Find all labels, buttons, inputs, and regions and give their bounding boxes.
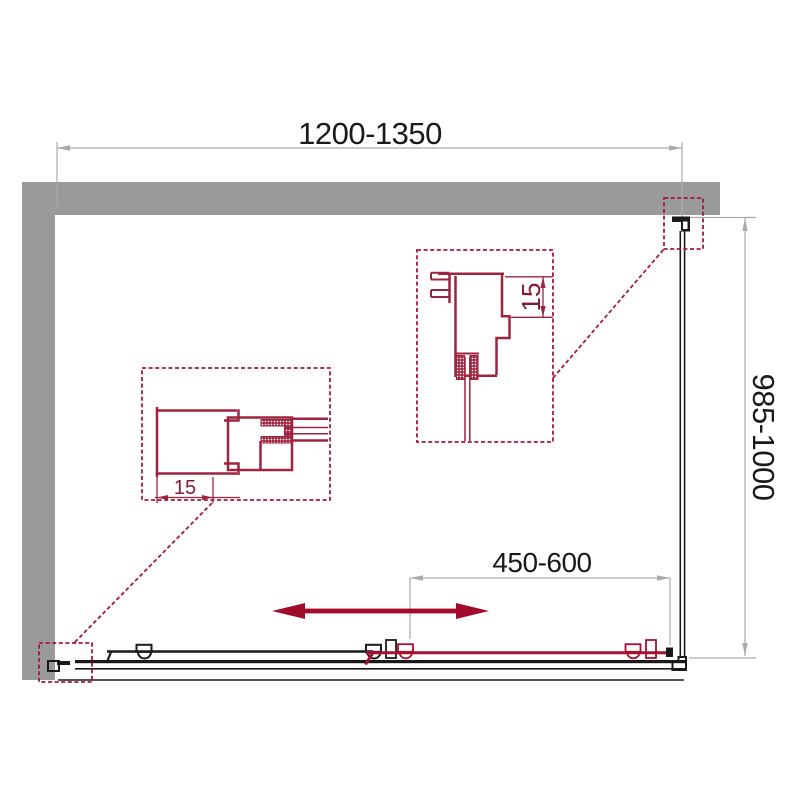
door-roller — [626, 644, 641, 658]
left-wall — [22, 182, 55, 680]
bottom-track — [58, 660, 686, 680]
detail-dimension-15-left-label: 15 — [174, 477, 196, 499]
walls — [22, 182, 720, 680]
leader-line-top — [553, 249, 664, 378]
detail-view-top-profile: 15 — [417, 250, 553, 442]
door-track-bracket — [646, 640, 656, 658]
door-roller — [398, 644, 413, 658]
track-bracket — [386, 640, 396, 658]
detail-dimension-15-top: 15 — [505, 277, 553, 318]
depth-dimension: 985-1000 — [689, 218, 781, 659]
slide-direction-arrow — [272, 603, 489, 619]
fixed-glass-panel — [107, 640, 397, 663]
door-end-cap — [666, 648, 673, 658]
detail-dimension-15-top-label: 15 — [516, 283, 546, 312]
top-wall — [22, 182, 720, 215]
detail-view-bottom-profile: 15 — [142, 368, 330, 503]
technical-drawing-canvas: 1200-1350 985-1000 450-600 — [0, 0, 800, 800]
shower-enclosure-diagram: 1200-1350 985-1000 450-600 — [0, 0, 800, 800]
door-travel-dimension: 450-600 — [410, 547, 670, 645]
leader-line-bottom — [74, 503, 212, 643]
door-travel-dimension-label: 450-600 — [492, 547, 591, 578]
right-side-panel — [672, 217, 690, 671]
width-dimension-label: 1200-1350 — [298, 116, 442, 151]
fixed-panel-clamp — [137, 645, 152, 659]
depth-dimension-label: 985-1000 — [746, 373, 781, 500]
